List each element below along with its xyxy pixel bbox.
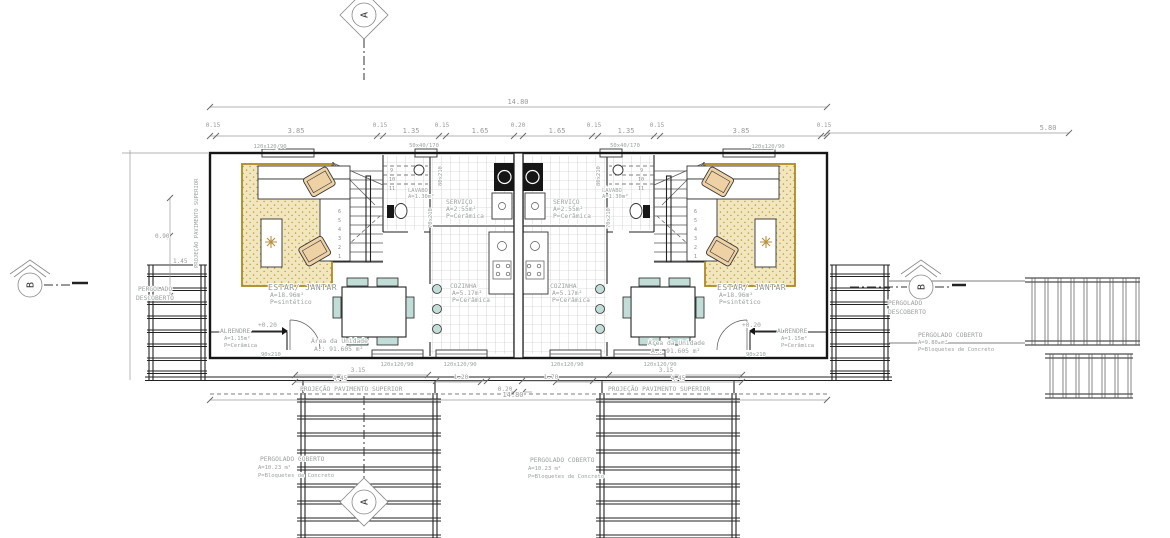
room-area: A=1.30m² bbox=[602, 193, 629, 200]
room-area: A=1.15m² bbox=[224, 335, 251, 342]
room-area: A=2.55m² bbox=[553, 206, 583, 213]
dim: 4.45 bbox=[671, 375, 686, 382]
level-mark-left: +0.20 bbox=[258, 322, 277, 329]
stair-number: 2 bbox=[694, 245, 697, 251]
dim: 1.20 bbox=[454, 374, 469, 381]
pergolado-descoberto-right-2: DESCOBERTO bbox=[888, 309, 926, 316]
stair-number: 11 bbox=[638, 186, 644, 192]
room-floor: P=Cerâmica bbox=[553, 212, 591, 220]
window-spec: 50x40/170 bbox=[409, 143, 439, 149]
room-floor: P=Cerâmica bbox=[446, 212, 484, 220]
stair-number: 9 bbox=[390, 168, 393, 174]
window-spec: 120x120/90 bbox=[443, 362, 476, 368]
pergolado-floor: P=Bloquetes de Concreto bbox=[258, 473, 334, 479]
room-label-alpendre-left: ALPENDRE bbox=[220, 328, 251, 335]
dim-seg: 0.15 bbox=[435, 122, 450, 129]
dim-seg: 1.65 bbox=[549, 127, 566, 135]
door-spec: 90x210 bbox=[261, 352, 281, 358]
room-area: A=1.15m² bbox=[781, 335, 808, 342]
stair-number: 11 bbox=[389, 186, 395, 192]
dim-seg: 0.15 bbox=[587, 122, 602, 129]
stair-number: 3 bbox=[338, 236, 341, 242]
dim-total-top: 14.80 bbox=[507, 98, 528, 106]
stair-number: 3 bbox=[694, 236, 697, 242]
window-spec: 50x40/170 bbox=[610, 143, 640, 149]
room-label-servico-right: SERVIÇO bbox=[553, 199, 580, 206]
level-mark-right: +0.20 bbox=[742, 322, 761, 329]
dim-seg: 0.15 bbox=[650, 122, 665, 129]
projecao-label-left: PROJEÇÃO PAVIMENTO SUPERIOR bbox=[300, 384, 403, 393]
dim-total-bottom: 14.80 bbox=[502, 391, 523, 399]
pergolado-floor: P=Bloquetes de Concreto bbox=[528, 474, 604, 480]
room-floor: P=Cerâmica bbox=[224, 342, 257, 349]
dim-seg: 0.20 bbox=[511, 122, 526, 129]
room-area: A=2.55m² bbox=[446, 206, 476, 213]
dim-seg: 0.15 bbox=[373, 122, 388, 129]
stair-number: 5 bbox=[338, 218, 341, 224]
pergolado-floor: P=Bloquetes de Concreto bbox=[918, 347, 994, 353]
floor-plan-drawing: A A B B 14.80 5.80 0.15 3.85 0.15 1.35 0… bbox=[0, 0, 1170, 538]
pergolado-area: A=10.23 m² bbox=[528, 465, 561, 472]
dim: 3.15 bbox=[659, 367, 674, 374]
pergolado-area: A=10.23 m² bbox=[258, 464, 291, 471]
door-spec: 70x210 bbox=[428, 208, 434, 228]
room-area: A=1.30m² bbox=[408, 193, 435, 200]
dim: 3.15 bbox=[351, 367, 366, 374]
marker-b-left-label: B bbox=[26, 282, 37, 288]
projecao-label-right: PROJEÇÃO PAVIMENTO SUPERIOR bbox=[608, 384, 711, 393]
window-spec: 120x120/90 bbox=[751, 144, 784, 150]
unit-area-value: A.: 91.605 m² bbox=[314, 346, 363, 353]
stair-number: 2 bbox=[338, 245, 341, 251]
dim: 4.45 bbox=[333, 375, 348, 382]
section-marker-a-top: A bbox=[340, 0, 388, 80]
stair-number: 10 bbox=[389, 177, 395, 183]
stair-number: 6 bbox=[338, 209, 341, 215]
dim: 1.70 bbox=[544, 374, 559, 381]
section-marker-b-left: B bbox=[10, 260, 88, 297]
dim: 1.45 bbox=[173, 258, 188, 265]
room-area: A=5.17m² bbox=[452, 290, 482, 297]
stair-number: 4 bbox=[338, 227, 341, 233]
room-floor: P=Cerâmica bbox=[452, 296, 490, 304]
pergolado-coberto-bottom-left: PERGOLADO COBERTO bbox=[260, 456, 325, 463]
dim-seg: 1.35 bbox=[403, 127, 420, 135]
pergola-right-structure bbox=[1025, 278, 1140, 398]
pergolado-descoberto-right: PERGOLADO bbox=[888, 300, 922, 307]
door-spec: 80x210 bbox=[438, 166, 444, 186]
marker-a-bottom-label: A bbox=[360, 499, 371, 505]
section-marker-b-right: B bbox=[850, 260, 966, 299]
window-spec: 120x120/90 bbox=[253, 144, 286, 150]
room-floor: P=sintético bbox=[719, 298, 761, 306]
room-label-estar-left: ESTAR/ JANTAR bbox=[268, 283, 337, 292]
pergolado-coberto-bottom-right: PERGOLADO COBERTO bbox=[530, 457, 595, 464]
window-spec: 120x120/90 bbox=[380, 362, 413, 368]
pergolado-area: A=9.80 m² bbox=[918, 339, 948, 346]
room-area: A=5.17m² bbox=[552, 290, 582, 297]
stair-number: 6 bbox=[694, 209, 697, 215]
floor-plan-canvas: A A B B 14.80 5.80 0.15 3.85 0.15 1.35 0… bbox=[0, 0, 1170, 538]
pergolado-coberto-right: PERGOLADO COBERTO bbox=[918, 332, 983, 339]
room-floor: P=sintético bbox=[270, 298, 312, 306]
stair-number: 5 bbox=[694, 218, 697, 224]
dim-seg: 0.15 bbox=[817, 122, 832, 129]
unit-area-left: Área da Unidade bbox=[311, 336, 368, 345]
pergolado-descoberto-left-2: DESCOBERTO bbox=[136, 295, 174, 302]
room-floor: P=Cerâmica bbox=[552, 296, 590, 304]
stair-number: 1 bbox=[338, 254, 341, 260]
unit-area-right: Área da Unidade bbox=[648, 338, 705, 347]
marker-b-right-label: B bbox=[917, 284, 928, 290]
dim-seg: 3.85 bbox=[733, 127, 750, 135]
room-area: A=18.96m² bbox=[719, 292, 753, 299]
door-spec: 80x210 bbox=[596, 166, 602, 186]
door-spec: 90x210 bbox=[746, 352, 766, 358]
dim-seg: 1.35 bbox=[618, 127, 635, 135]
dim-right-total: 5.80 bbox=[1040, 124, 1057, 132]
pergolado-descoberto-left: PERGOLADO bbox=[138, 286, 172, 293]
room-label-cozinha-left: COZINHA bbox=[450, 283, 477, 290]
dim-seg: 1.65 bbox=[472, 127, 489, 135]
room-label-alpendre-right: ALPENDRE bbox=[777, 328, 808, 335]
marker-a-top-label: A bbox=[360, 12, 371, 18]
room-label-servico-left: SERVIÇO bbox=[446, 199, 473, 206]
projecao-label-vertical: PROJEÇÃO PAVIMENTO SUPERIOR bbox=[193, 178, 200, 268]
stair-number: 10 bbox=[638, 177, 644, 183]
room-label-estar-right: ESTAR/ JANTAR bbox=[717, 283, 786, 292]
unit-area-value: A.: 91.605 m² bbox=[651, 348, 700, 355]
dim: 0.90 bbox=[155, 233, 170, 240]
stair-number: 4 bbox=[694, 227, 697, 233]
room-area: A=18.96m² bbox=[270, 292, 304, 299]
door-spec: 70x210 bbox=[606, 208, 612, 228]
dim-seg: 3.85 bbox=[288, 127, 305, 135]
dim-seg: 0.15 bbox=[206, 122, 221, 129]
room-label-cozinha-right: COZINHA bbox=[550, 283, 577, 290]
stair-number: 9 bbox=[640, 168, 643, 174]
room-floor: P=Cerâmica bbox=[781, 342, 814, 349]
window-spec: 120x120/90 bbox=[550, 362, 583, 368]
stair-number: 1 bbox=[694, 254, 697, 260]
